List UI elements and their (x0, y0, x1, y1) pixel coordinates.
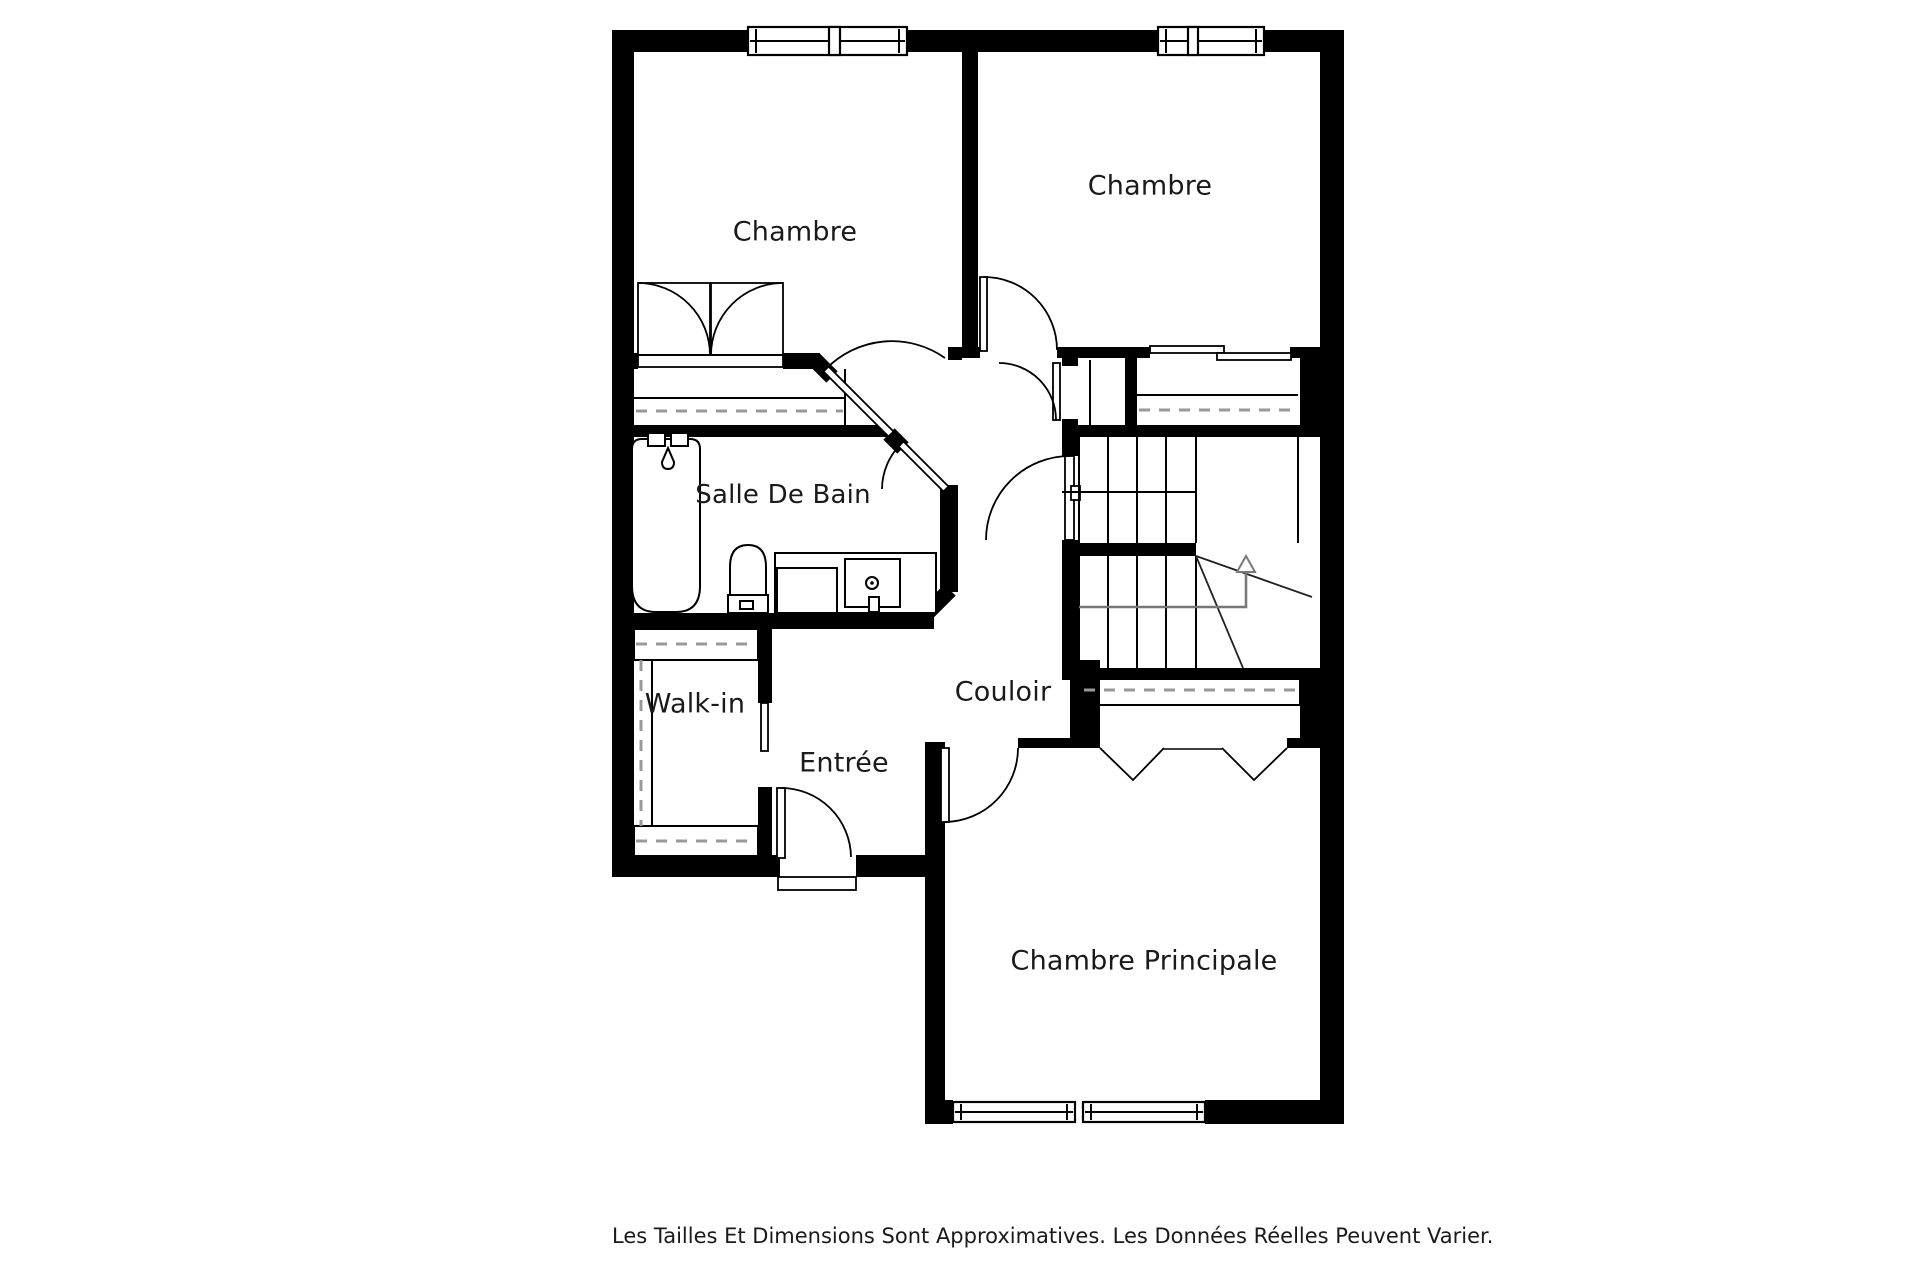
room-label-walk-in: Walk-in (645, 689, 745, 720)
closet-bedroom2 (1137, 346, 1298, 410)
bathroom-fixtures (632, 433, 936, 613)
room-label-chambre-2: Chambre (1088, 171, 1212, 202)
door-master-bedroom (941, 748, 1018, 822)
room-label-couloir: Couloir (955, 677, 1052, 708)
room-label-chambre-1: Chambre (733, 217, 857, 248)
door-entree (777, 788, 856, 890)
bifold-closet-doors-master (1100, 748, 1287, 780)
window-master-right (1083, 1102, 1205, 1122)
walk-in-shelving (634, 629, 758, 857)
vanity-sink (775, 553, 936, 613)
toilet (728, 545, 768, 613)
window-master-left (953, 1102, 1075, 1122)
room-label-salle-de-bain: Salle De Bain (695, 480, 871, 510)
stair-cut-line (1196, 556, 1312, 597)
window-bedroom2 (1158, 27, 1264, 55)
bathtub (632, 433, 700, 612)
door-bedroom2 (980, 277, 1057, 351)
double-closet-doors-bedroom1 (638, 283, 783, 355)
room-label-chambre-principale: Chambre Principale (1011, 946, 1278, 977)
floor-plan-page: Chambre Chambre Salle De Bain Walk-in Co… (0, 0, 1920, 1280)
door-bathroom (882, 442, 949, 492)
door-hallway (986, 456, 1080, 540)
disclaimer-text: Les Tailles Et Dimensions Sont Approxima… (612, 1224, 1356, 1248)
door-bedroom1 (824, 341, 946, 436)
window-bedroom1 (748, 27, 907, 55)
room-label-entree: Entrée (799, 748, 889, 779)
door-linen-closet (999, 363, 1060, 420)
pocket-door-walk-in (761, 703, 768, 751)
floor-plan-drawing (0, 0, 1920, 1280)
